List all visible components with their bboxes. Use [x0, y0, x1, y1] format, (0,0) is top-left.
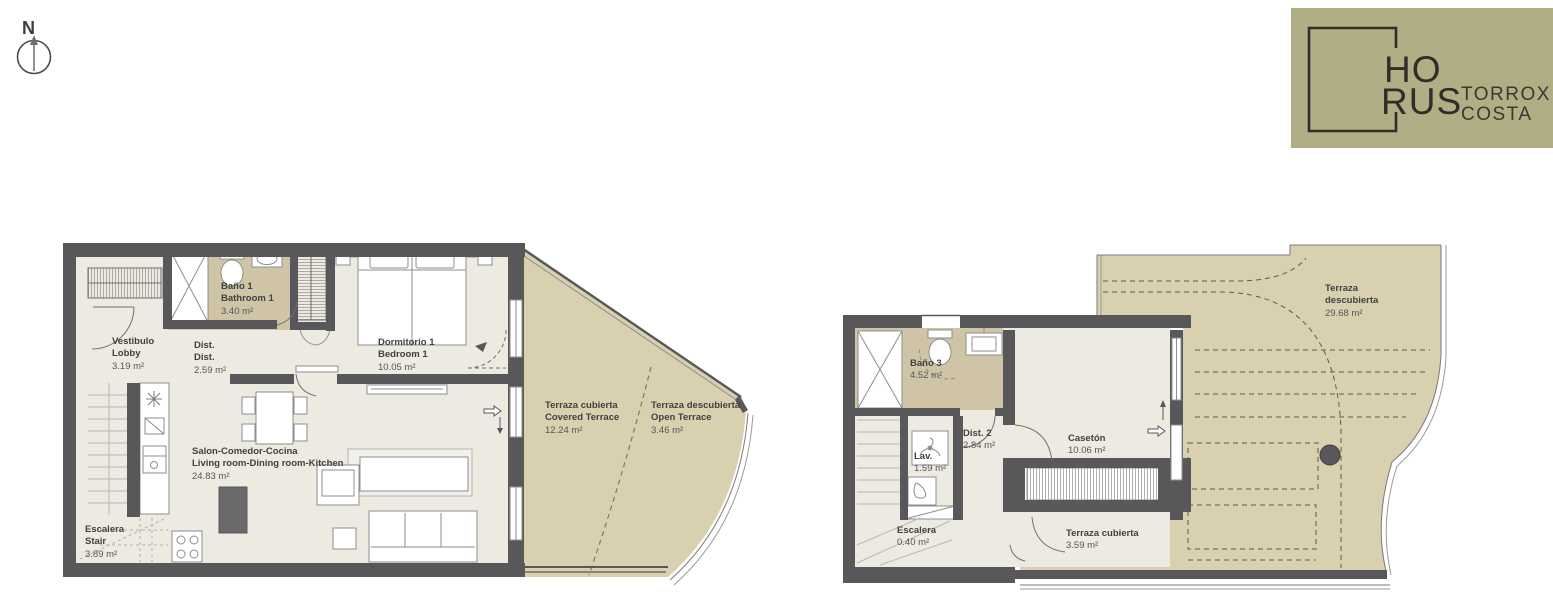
north-label: N	[22, 18, 35, 38]
north-arrow: N	[6, 8, 62, 82]
shower-icon	[170, 250, 208, 322]
room-label-escalera: Escalera Stair 3.89 m²	[85, 524, 124, 561]
room-name: Salon-Comedor-Cocina	[192, 446, 343, 458]
room-area: 2.59 m²	[194, 365, 226, 377]
room-area: 2.84 m²	[963, 440, 995, 452]
logo-project-2: COSTA	[1461, 104, 1533, 125]
room-label-escalera-2: Escalera 0.40 m²	[897, 525, 936, 550]
room-area: 3.89 m²	[85, 549, 124, 561]
terrace-column	[1320, 445, 1340, 465]
room-name: Casetón	[1068, 433, 1106, 445]
pergola-louvres-icon	[1022, 464, 1165, 504]
room-area: 12.24 m²	[545, 425, 619, 437]
room-label-dist-1: Dist. Dist. 2.59 m²	[194, 340, 226, 377]
room-name: Lobby	[112, 348, 154, 360]
logo-rus: RUS	[1381, 81, 1462, 122]
window	[510, 300, 522, 540]
wall-niche	[922, 314, 960, 328]
room-name: Open Terrace	[651, 412, 740, 424]
room-label-caseton: Casetón 10.06 m²	[1068, 433, 1106, 458]
room-label-dist-2: Dist. 2 2.84 m²	[963, 428, 995, 453]
room-label-vestibulo: Vestibulo Lobby 3.19 m²	[112, 336, 154, 373]
room-name: Terraza descubierta	[651, 400, 740, 412]
room-name: descubierta	[1325, 295, 1378, 307]
room-area: 0.40 m²	[897, 537, 936, 549]
shower-icon	[858, 331, 902, 408]
room-label-salon: Salon-Comedor-Cocina Living room-Dining …	[192, 446, 343, 483]
room-name: Escalera	[85, 524, 124, 536]
room-name: Dist. 2	[963, 428, 995, 440]
room-label-bano-1: Baño 1 Bathroom 1 3.40 m²	[221, 281, 274, 318]
room-name: Bathroom 1	[221, 293, 274, 305]
room-name: Baño 1	[221, 281, 274, 293]
room-name: Dormitorio 1	[378, 337, 434, 349]
room-area: 3.59 m²	[1066, 540, 1139, 552]
stove-icon	[172, 531, 202, 562]
room-area: 3.19 m²	[112, 361, 154, 373]
floor-plan-sheet: N HO RUS TORROX COSTA	[0, 0, 1553, 612]
room-area: 3.40 m²	[221, 306, 274, 318]
room-area: 3.46 m²	[651, 425, 740, 437]
room-name: Lav.	[914, 451, 946, 463]
bed-icon	[348, 248, 476, 345]
room-area: 10.06 m²	[1068, 445, 1106, 457]
room-name: Terraza cubierta	[545, 400, 619, 412]
room-label-dormitorio-1: Dormitorio 1 Bedroom 1 10.05 m²	[378, 337, 434, 374]
floor-plan-roof-level	[838, 235, 1553, 612]
room-name: Bedroom 1	[378, 349, 434, 361]
room-label-terraza-cubierta: Terraza cubierta Covered Terrace 12.24 m…	[545, 400, 619, 437]
room-name: Living room-Dining room-Kitchen	[192, 458, 343, 470]
room-name: Dist.	[194, 340, 226, 352]
room-name: Dist.	[194, 352, 226, 364]
logo-project-1: TORROX	[1461, 84, 1551, 105]
room-area: 1.59 m²	[914, 463, 946, 475]
room-area: 4.52 m²	[910, 370, 942, 382]
room-name: Stair	[85, 536, 124, 548]
room-name: Terraza	[1325, 283, 1378, 295]
brand-logo: HO RUS TORROX COSTA	[1291, 8, 1553, 148]
room-area: 24.83 m²	[192, 471, 343, 483]
room-label-lav: Lav. 1.59 m²	[914, 451, 946, 476]
room-label-terraza-cubierta-2: Terraza cubierta 3.59 m²	[1066, 528, 1139, 553]
room-name: Escalera	[897, 525, 936, 537]
room-area: 29.68 m²	[1325, 308, 1378, 320]
sideboard-icon	[367, 385, 447, 394]
room-name: Terraza cubierta	[1066, 528, 1139, 540]
counter-icon	[905, 506, 955, 519]
room-name: Vestibulo	[112, 336, 154, 348]
laundry-sink-icon	[908, 477, 936, 505]
room-label-terraza-descubierta: Terraza descubierta Open Terrace 3.46 m²	[651, 400, 740, 437]
room-name: Baño 3	[910, 358, 942, 370]
room-label-bano-3: Baño 3 4.52 m²	[910, 358, 942, 383]
room-area: 10.05 m²	[378, 362, 434, 374]
kitchen-counter-icon	[140, 383, 169, 514]
room-name: Covered Terrace	[545, 412, 619, 424]
room-label-terraza-descubierta-2: Terraza descubierta 29.68 m²	[1325, 283, 1378, 320]
kitchen-island-icon	[219, 487, 247, 533]
closet-icon	[88, 268, 162, 298]
